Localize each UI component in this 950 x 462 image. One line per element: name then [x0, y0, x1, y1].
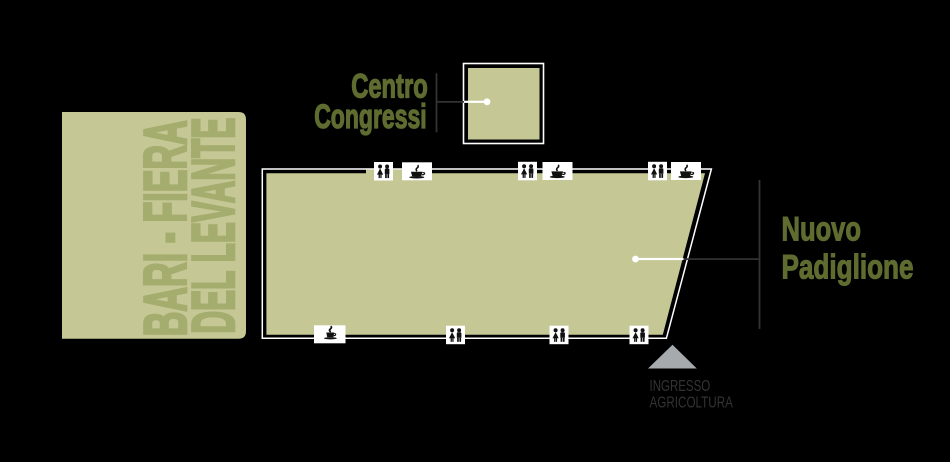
svg-text:Padiglione: Padiglione [782, 249, 914, 287]
svg-text:AGRICOLTURA: AGRICOLTURA [650, 395, 734, 412]
svg-text:Congressi: Congressi [314, 98, 427, 136]
svg-text:INGRESSO: INGRESSO [650, 378, 711, 395]
svg-text:DEL LEVANTE: DEL LEVANTE [179, 118, 247, 334]
svg-text:Nuovo: Nuovo [782, 211, 862, 249]
